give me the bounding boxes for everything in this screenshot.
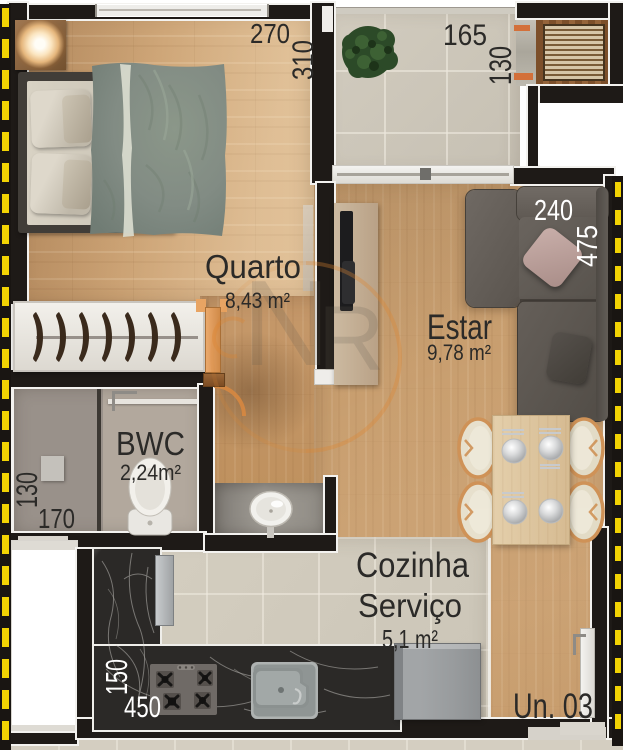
svg-text:R: R — [318, 288, 384, 390]
svg-text:N: N — [242, 255, 330, 391]
